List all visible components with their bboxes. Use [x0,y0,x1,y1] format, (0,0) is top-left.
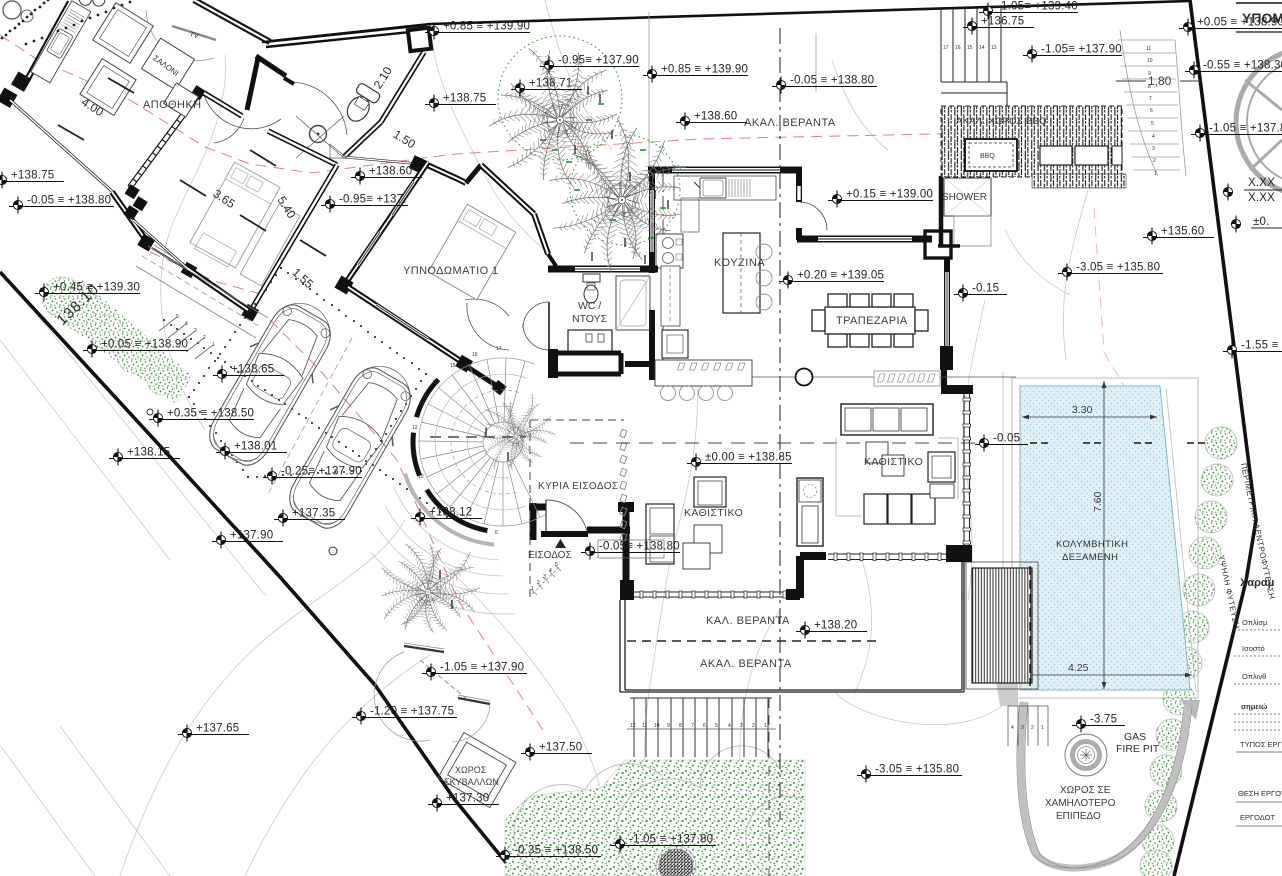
svg-text:2: 2 [203,335,206,341]
svg-text:+137.50: +137.50 [539,742,582,754]
svg-text:3: 3 [543,574,546,580]
svg-text:+137.90: +137.90 [230,530,273,542]
svg-text:+138.15: +138.15 [127,447,170,459]
svg-text:ΚΑΛ. ΒΕΡΑΝΤΑ: ΚΑΛ. ΒΕΡΑΝΤΑ [706,615,790,627]
svg-text:ΚΑΘΙΣΤΙΚΟ: ΚΑΘΙΣΤΙΚΟ [864,456,923,468]
svg-text:Χαραμ: Χαραμ [1240,577,1274,589]
svg-text:-0.35 ≡ +138.50: -0.35 ≡ +138.50 [514,845,598,857]
svg-text:ΣΚΥΒΑΛΛΩΝ: ΣΚΥΒΑΛΛΩΝ [444,777,499,787]
svg-text:X.XX: X.XX [1248,177,1275,189]
svg-text:-0.05 ≡ +138.80: -0.05 ≡ +138.80 [790,75,874,87]
svg-text:-0.05: -0.05 [993,433,1020,445]
svg-text:7.60: 7.60 [1092,491,1104,512]
svg-text:1: 1 [531,586,534,592]
svg-text:ΔΕΞΑΜΕΝΗ: ΔΕΞΑΜΕΝΗ [1062,552,1118,563]
svg-text:ΚΟΥΖΙΝΑ: ΚΟΥΖΙΝΑ [714,257,765,269]
svg-text:11: 11 [412,450,417,456]
svg-text:ΑΚΑΛ. ΧΩΡΟΣ BBQ: ΑΚΑΛ. ΧΩΡΟΣ BBQ [956,116,1047,127]
svg-text:ΝΤΟΥΣ: ΝΤΟΥΣ [572,313,608,325]
svg-text:+0.35 ≡ +138.50: +0.35 ≡ +138.50 [167,408,254,420]
svg-text:ΑΚΑΛ. ΒΕΡΑΝΤΑ: ΑΚΑΛ. ΒΕΡΑΝΤΑ [700,658,792,670]
svg-text:ΚΥΡΙΑ ΕΙΣΟΔΟΣ: ΚΥΡΙΑ ΕΙΣΟΔΟΣ [538,481,619,492]
svg-text:+135.60: +135.60 [1161,226,1204,238]
svg-text:2: 2 [752,723,755,729]
svg-text:+138.60: +138.60 [694,111,737,123]
svg-text:1,80: 1,80 [1148,74,1172,88]
svg-text:+138.01: +138.01 [234,441,277,453]
svg-text:ΥΠΝΟΔΩΜΑΤΙΟ 1: ΥΠΝΟΔΩΜΑΤΙΟ 1 [403,265,499,277]
svg-text:5: 5 [176,314,179,320]
svg-text:±0.00 ≡ +138.85: ±0.00 ≡ +138.85 [705,452,792,464]
svg-text:GAS: GAS [1124,731,1146,743]
svg-text:14: 14 [979,45,985,51]
svg-text:ΕΙΣΟΔΟΣ: ΕΙΣΟΔΟΣ [528,550,572,561]
svg-text:9: 9 [431,495,434,501]
svg-text:+0.85 ≡ +139.90: +0.85 ≡ +139.90 [443,21,530,33]
svg-text:10: 10 [654,723,660,729]
svg-text:-3.05 ≡ +135.80: -3.05 ≡ +135.80 [1076,262,1160,274]
svg-text:-1.05≡ +139.40: -1.05≡ +139.40 [997,1,1078,13]
svg-text:-1.05≡ +137.90: -1.05≡ +137.90 [1041,44,1122,56]
svg-text:ΤΥΠΟΣ ΕΡΓΟ: ΤΥΠΟΣ ΕΡΓΟ [1240,740,1282,749]
svg-text:12: 12 [630,723,636,729]
svg-text:SHOWER: SHOWER [942,192,987,203]
svg-text:3: 3 [740,723,743,729]
svg-text:ΕΠΙΠΕΔΟ: ΕΠΙΠΕΔΟ [1056,811,1101,822]
svg-text:+138.12: +138.12 [429,507,472,519]
svg-text:+138.75: +138.75 [443,93,486,105]
svg-text:17: 17 [943,45,949,51]
svg-text:14: 14 [432,380,438,386]
svg-text:ΧΩΡΟΣ ΣΕ: ΧΩΡΟΣ ΣΕ [1060,785,1111,796]
svg-text:17: 17 [496,346,502,352]
svg-text:11: 11 [1146,46,1151,52]
svg-text:Οπλινθ: Οπλινθ [1242,672,1266,681]
svg-text:16: 16 [472,352,478,358]
svg-text:-0.95≡ +137.: -0.95≡ +137. [339,194,407,206]
svg-text:ΚΑΘΙΣΤΙΚΟ: ΚΑΘΙΣΤΙΚΟ [684,507,743,519]
svg-text:+138.75: +138.75 [11,170,54,182]
svg-text:+138.60: +138.60 [369,166,412,178]
svg-text:+138.71: +138.71 [529,78,572,90]
svg-text:-3.75: -3.75 [1090,714,1117,726]
svg-text:+137.30: +137.30 [446,793,489,805]
svg-text:16: 16 [955,45,961,51]
svg-text:3: 3 [1021,725,1024,731]
svg-text:4: 4 [185,321,188,327]
svg-text:4.25: 4.25 [1068,662,1089,674]
svg-text:13: 13 [419,401,425,407]
svg-text:ΑΠΟΘΗΚΗ: ΑΠΟΘΗΚΗ [143,99,201,111]
svg-text:+137.35: +137.35 [292,508,335,520]
svg-text:4: 4 [1011,725,1014,731]
svg-text:15: 15 [450,363,456,369]
svg-text:4: 4 [1152,134,1155,140]
svg-text:12: 12 [412,425,418,431]
svg-text:3: 3 [1152,146,1155,152]
svg-text:+0.85 ≡ +139.90: +0.85 ≡ +139.90 [661,64,748,76]
svg-text:-0.15: -0.15 [972,283,999,295]
svg-text:-0.25≡ +137.90: -0.25≡ +137.90 [281,466,362,478]
svg-text:-1.20 ≡ +137.75: -1.20 ≡ +137.75 [370,706,454,718]
svg-text:1: 1 [212,342,215,348]
svg-text:+138.20: +138.20 [814,620,857,632]
svg-text:10: 10 [418,474,424,480]
svg-text:6: 6 [703,723,706,729]
svg-text:1: 1 [1041,725,1044,731]
svg-text:FIRE PIT: FIRE PIT [1116,743,1160,755]
svg-text:Οπλίσμ: Οπλίσμ [1242,618,1267,627]
svg-text:5: 5 [715,723,718,729]
svg-text:-3.05 ≡ +135.80: -3.05 ≡ +135.80 [875,764,959,776]
svg-text:+0.05 ≡ +138.90: +0.05 ≡ +138.90 [1197,17,1282,29]
svg-text:σημειώ: σημειώ [1241,702,1268,711]
svg-text:5: 5 [1151,121,1154,127]
svg-text:ΧΑΜΗΛΟΤΕΡΟ: ΧΑΜΗΛΟΤΕΡΟ [1045,798,1116,809]
svg-text:ΧΩΡΟΣ: ΧΩΡΟΣ [455,765,487,775]
svg-text:ΕΡΓΟΔΟΤ: ΕΡΓΟΔΟΤ [1240,813,1275,822]
svg-text:9: 9 [667,723,670,729]
svg-text:+0.15 ≡ +139.00: +0.15 ≡ +139.00 [846,189,933,201]
svg-text:7: 7 [1149,96,1152,102]
svg-text:2: 2 [1153,158,1156,164]
svg-text:+0.45 ≡ +139.30: +0.45 ≡ +139.30 [53,282,140,294]
svg-text:-1.55 ≡ +: -1.55 ≡ + [1241,340,1282,352]
svg-text:7: 7 [691,723,694,729]
svg-text:3: 3 [194,328,197,334]
svg-text:ΚΟΛΥΜΒΗΤΙΚΗ: ΚΟΛΥΜΒΗΤΙΚΗ [1056,539,1128,550]
svg-text:-0.55 ≡ +138.30: -0.55 ≡ +138.30 [1203,60,1282,72]
svg-text:6: 6 [495,530,498,536]
svg-text:+137.65: +137.65 [196,723,239,735]
svg-text:1: 1 [764,723,767,729]
svg-text:10: 10 [1147,58,1153,64]
svg-text:6: 6 [1150,108,1153,114]
svg-text:ΤΡΑΠΕΖΑΡΙΑ: ΤΡΑΠΕΖΑΡΙΑ [836,315,908,327]
svg-text:5: 5 [555,562,558,568]
svg-text:-0.05≡ +138.80: -0.05≡ +138.80 [599,541,680,553]
svg-text:8: 8 [679,723,682,729]
svg-text:BBQ: BBQ [980,153,995,160]
svg-text:ΑΚΑΛ. ΒΕΡΑΝΤΑ: ΑΚΑΛ. ΒΕΡΑΝΤΑ [744,117,836,129]
svg-text:-0.95≡ +137.90: -0.95≡ +137.90 [558,55,639,67]
svg-text:-1.05 ≡ +137.80: -1.05 ≡ +137.80 [629,834,713,846]
svg-text:X.XX: X.XX [1248,192,1275,204]
svg-text:ΘΕΣΗ ΕΡΓΟΥ: ΘΕΣΗ ΕΡΓΟΥ [1238,789,1282,798]
svg-text:2: 2 [1031,725,1034,731]
svg-text:15: 15 [967,45,973,51]
svg-text:±0.: ±0. [1253,216,1270,228]
svg-text:4: 4 [549,568,552,574]
svg-text:WC /: WC / [578,300,601,312]
svg-text:1: 1 [1154,171,1157,177]
svg-text:+0.05 ≡ +138.90: +0.05 ≡ +138.90 [101,339,188,351]
svg-text:Ισοστό: Ισοστό [1242,644,1265,653]
svg-text:3.30: 3.30 [1072,404,1093,416]
svg-text:-1.05 ≡ +137.90: -1.05 ≡ +137.90 [440,662,524,674]
svg-text:4: 4 [728,723,731,729]
svg-text:7: 7 [471,524,474,530]
svg-text:+0.20 ≡ +139.05: +0.20 ≡ +139.05 [797,270,884,282]
svg-text:-0.05 ≡ +138.80: -0.05 ≡ +138.80 [27,195,111,207]
svg-text:2: 2 [537,580,540,586]
svg-text:-1.05 ≡ +137.80: -1.05 ≡ +137.80 [1209,123,1282,135]
svg-text:13: 13 [991,45,997,51]
svg-text:+138.65: +138.65 [231,364,274,376]
svg-text:11: 11 [642,723,647,729]
